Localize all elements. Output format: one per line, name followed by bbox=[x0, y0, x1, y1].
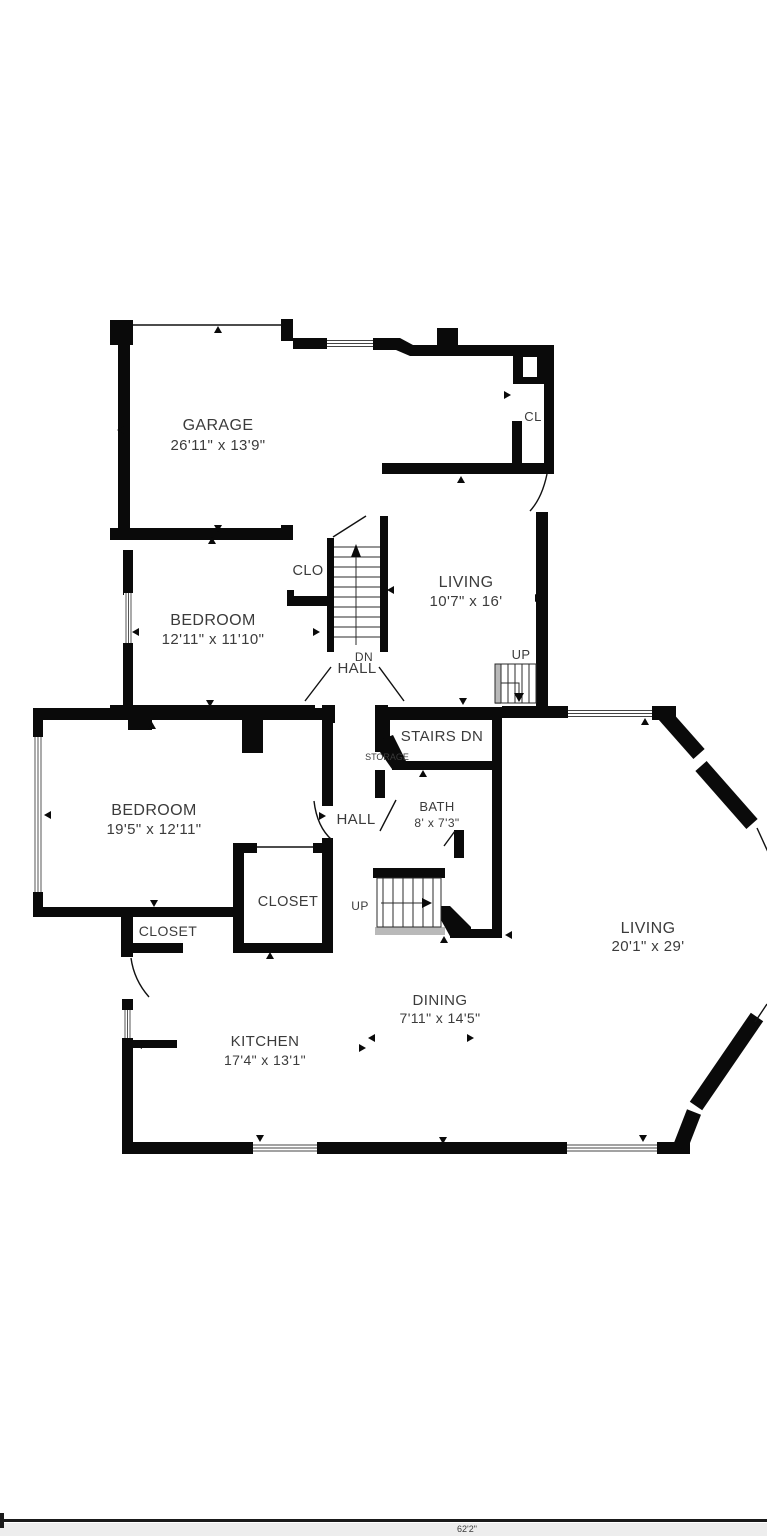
stair-direction-arrow bbox=[351, 544, 361, 557]
door-swing bbox=[444, 831, 455, 846]
room-dims-kitchen: 17'4" x 13'1" bbox=[224, 1052, 306, 1068]
arrow-marker bbox=[639, 1135, 647, 1142]
arrow-marker bbox=[132, 628, 139, 636]
walls bbox=[33, 319, 757, 1154]
stair-direction-arrow bbox=[422, 898, 432, 908]
label-hall-upper: HALL bbox=[337, 660, 376, 677]
label-hall-lower: HALL bbox=[336, 811, 375, 828]
arrow-marker bbox=[387, 586, 394, 594]
arrow-marker bbox=[214, 326, 222, 333]
arrow-marker bbox=[440, 936, 448, 943]
arrow-marker bbox=[359, 1044, 366, 1052]
staircase-entry-up bbox=[495, 664, 536, 704]
room-dims-bedroom1: 12'11" x 11'10" bbox=[162, 631, 265, 648]
window bbox=[568, 708, 652, 719]
window bbox=[123, 1010, 132, 1038]
room-dims-garage: 26'11" x 13'9" bbox=[170, 437, 265, 454]
label-closet-small: CLOSET bbox=[258, 894, 318, 910]
label-up-lower: UP bbox=[351, 899, 368, 913]
arrow-marker bbox=[504, 391, 511, 399]
door-swing bbox=[755, 1004, 767, 1022]
label-cl-closet: CL bbox=[524, 409, 541, 424]
door-swing bbox=[380, 800, 396, 831]
front-door-swing bbox=[530, 474, 547, 511]
arrow-marker bbox=[459, 698, 467, 705]
room-label-bath: BATH bbox=[419, 799, 454, 814]
arrow-marker bbox=[150, 900, 158, 907]
door-swing bbox=[757, 828, 767, 852]
label-stairs-dn: STAIRS DN bbox=[401, 728, 484, 745]
window bbox=[253, 1143, 317, 1153]
door-swing bbox=[333, 516, 366, 537]
arrow-marker bbox=[319, 812, 326, 820]
label-closet-wide: CLOSET bbox=[139, 923, 197, 939]
room-dims-bedroom2: 19'5" x 12'11" bbox=[106, 821, 201, 838]
room-label-living-upper: LIVING bbox=[439, 574, 494, 591]
window bbox=[124, 593, 133, 643]
label-clo-closet: CLO bbox=[292, 563, 323, 579]
arrow-marker bbox=[505, 931, 512, 939]
window bbox=[33, 737, 43, 892]
room-label-bedroom1: BEDROOM bbox=[170, 612, 255, 629]
scale-label: 62'2" bbox=[457, 1524, 477, 1534]
floor-plan-page: GARAGE 26'11" x 13'9" CL CLO BEDROOM 12'… bbox=[0, 0, 767, 1536]
room-label-dining: DINING bbox=[413, 992, 468, 1009]
staircase-lower-up bbox=[375, 878, 445, 935]
arrow-marker bbox=[313, 628, 320, 636]
arrow-marker bbox=[641, 718, 649, 725]
room-dims-living-upper: 10'7" x 16' bbox=[430, 593, 503, 610]
room-dims-dining: 7'11" x 14'5" bbox=[400, 1010, 481, 1026]
room-dims-living-main: 20'1" x 29' bbox=[612, 938, 685, 955]
window bbox=[327, 338, 373, 349]
staircase-main-dn bbox=[334, 544, 380, 645]
arrow-marker bbox=[457, 476, 465, 483]
arrow-markers bbox=[44, 326, 649, 1144]
floor-plan: GARAGE 26'11" x 13'9" CL CLO BEDROOM 12'… bbox=[0, 0, 767, 1536]
label-storage: STORAGE bbox=[365, 752, 409, 762]
room-labels: GARAGE 26'11" x 13'9" CL CLO BEDROOM 12'… bbox=[106, 409, 684, 1068]
arrow-marker bbox=[368, 1034, 375, 1042]
door-swing bbox=[379, 667, 404, 701]
label-up-entry: UP bbox=[512, 647, 531, 662]
arrow-marker bbox=[44, 811, 51, 819]
arrow-marker bbox=[256, 1135, 264, 1142]
room-label-bedroom2: BEDROOM bbox=[111, 802, 196, 819]
door-swing bbox=[305, 667, 331, 701]
door-swing bbox=[314, 801, 332, 840]
window bbox=[567, 1143, 657, 1153]
room-label-garage: GARAGE bbox=[183, 417, 254, 434]
arrow-marker bbox=[266, 952, 274, 959]
arrow-marker bbox=[467, 1034, 474, 1042]
door-swing bbox=[131, 958, 149, 997]
scale-bar: 62'2" bbox=[0, 1513, 767, 1536]
arrow-marker bbox=[419, 770, 427, 777]
room-label-living-main: LIVING bbox=[621, 920, 676, 937]
room-label-kitchen: KITCHEN bbox=[231, 1033, 300, 1050]
room-dims-bath: 8' x 7'3" bbox=[414, 816, 459, 830]
